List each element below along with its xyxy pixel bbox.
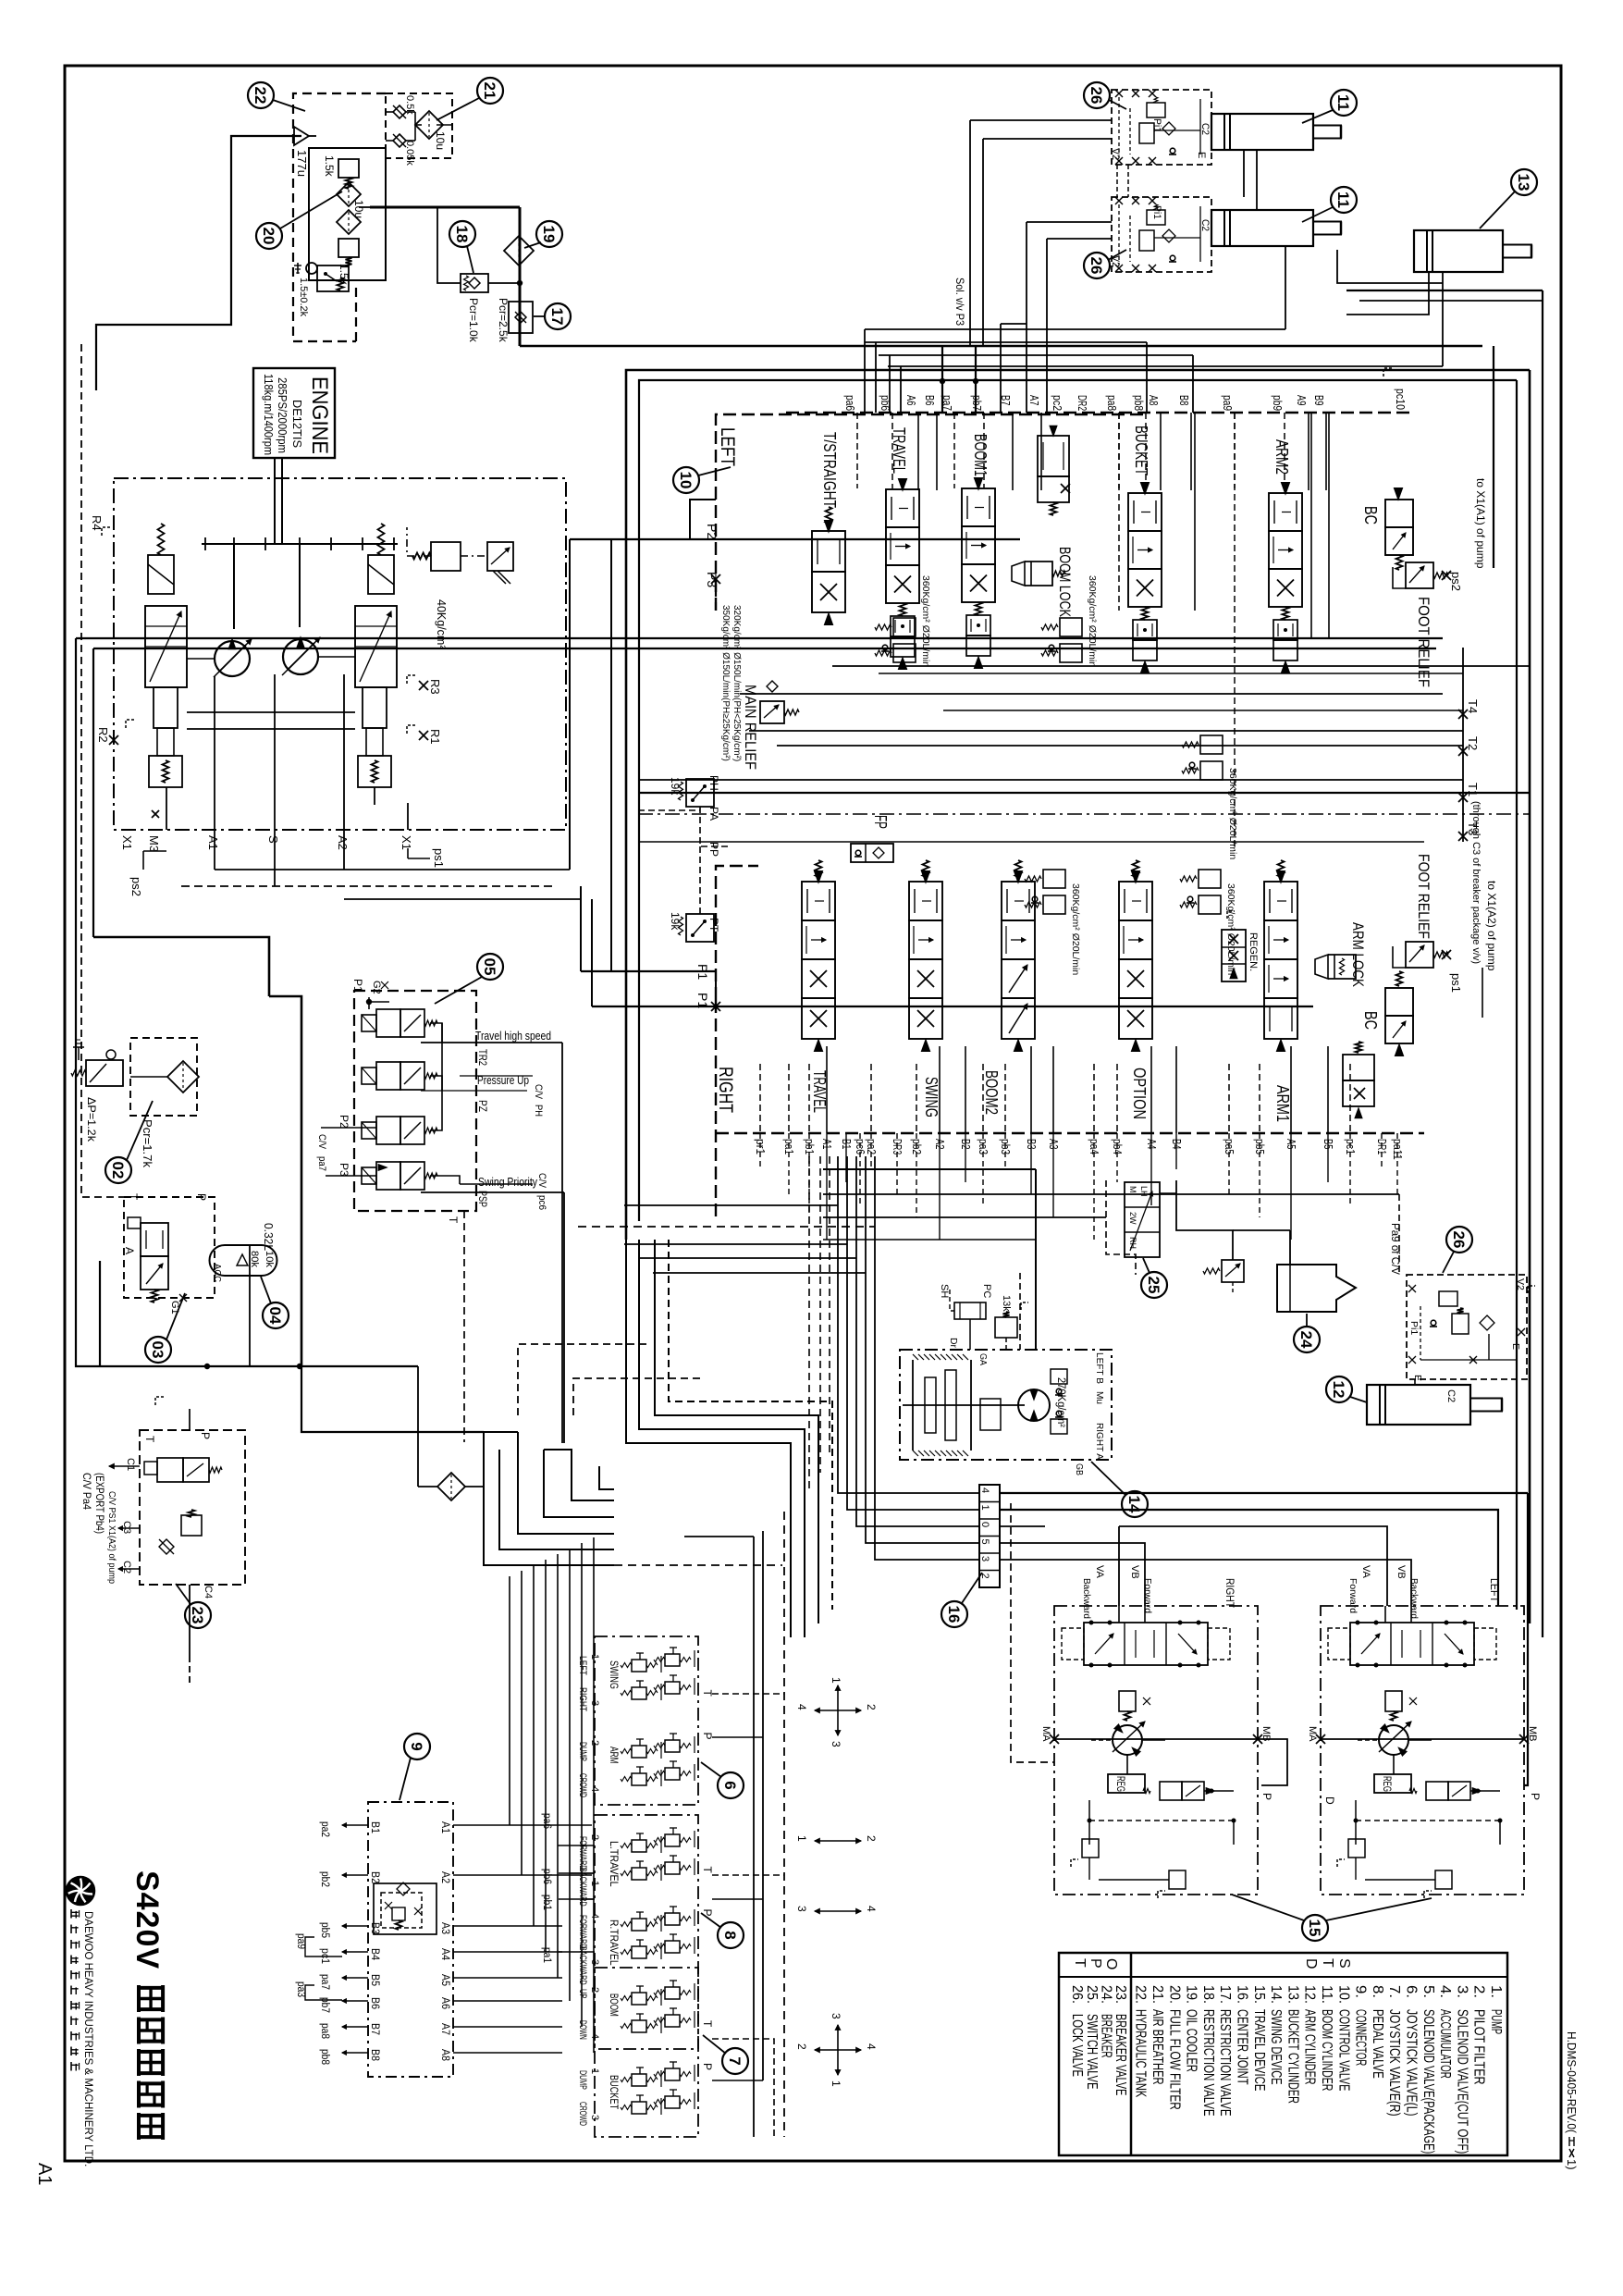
svg-text:pc2: pc2 — [1051, 395, 1064, 411]
svg-text:0.32L: 0.32L — [262, 1223, 276, 1251]
svg-text:T: T — [701, 2020, 714, 2028]
svg-text:GA: GA — [977, 1353, 989, 1365]
svg-text:E: E — [1196, 152, 1207, 158]
svg-text:PH: PH — [707, 775, 720, 791]
svg-text:T4: T4 — [1466, 699, 1480, 713]
svg-text:OPTION: OPTION — [1130, 1068, 1149, 1119]
svg-text:1: 1 — [589, 1881, 600, 1886]
svg-text:14.: 14. — [1268, 1985, 1284, 2004]
svg-text:PP: PP — [707, 842, 720, 857]
svg-text:10.: 10. — [1335, 1985, 1351, 2004]
svg-text:20.: 20. — [1166, 1985, 1182, 2004]
svg-text:LEFT: LEFT — [577, 1656, 588, 1675]
svg-text:03: 03 — [149, 1341, 166, 1359]
svg-text:LH: LH — [1139, 1186, 1149, 1197]
svg-text:D: D — [1303, 1958, 1319, 1969]
svg-text:pa9: pa9 — [295, 1933, 306, 1949]
svg-text:T/STRAIGHT: T/STRAIGHT — [820, 432, 839, 508]
svg-text:5.: 5. — [1420, 1985, 1436, 1998]
svg-text:A2: A2 — [336, 835, 350, 850]
svg-text:LOCK VALVE: LOCK VALVE — [1069, 2014, 1085, 2077]
svg-text:E: E — [1412, 1375, 1423, 1381]
svg-text:18.: 18. — [1200, 1985, 1216, 2004]
svg-text:P1: P1 — [351, 979, 364, 993]
svg-text:JOYSTICK VALVE(L): JOYSTICK VALVE(L) — [1404, 2009, 1420, 2117]
svg-text:23: 23 — [189, 1607, 206, 1624]
svg-text:FOOT RELIEF: FOOT RELIEF — [1415, 854, 1432, 939]
svg-text:3: 3 — [589, 2115, 600, 2120]
svg-text:5: 5 — [979, 1539, 990, 1545]
svg-text:TRAVEL DEVICE: TRAVEL DEVICE — [1251, 2009, 1267, 2091]
svg-text:02: 02 — [109, 1162, 127, 1179]
svg-text:X1: X1 — [400, 835, 413, 850]
svg-text:ARM2: ARM2 — [1273, 439, 1291, 475]
svg-text:to X1(A1) of pump: to X1(A1) of pump — [1474, 478, 1487, 569]
svg-text:BOOM2: BOOM2 — [982, 1070, 1001, 1115]
svg-text:SOLENOID VALVE(CUT OFF): SOLENOID VALVE(CUT OFF) — [1454, 2009, 1469, 2154]
svg-text:8: 8 — [721, 1931, 739, 1939]
svg-text:pa2: pa2 — [319, 1821, 330, 1837]
svg-text:T: T — [1320, 1958, 1335, 1968]
svg-text:25.: 25. — [1084, 1985, 1100, 2004]
svg-text:P: P — [701, 2063, 714, 2070]
svg-text:11: 11 — [1334, 94, 1352, 111]
svg-text:C/V PS1 X1(A2) of pump: C/V PS1 X1(A2) of pump — [106, 1491, 117, 1584]
svg-text:Dr: Dr — [948, 1338, 959, 1348]
svg-text:BUCKET: BUCKET — [608, 2075, 621, 2110]
svg-text:AIR BREATHER: AIR BREATHER — [1150, 2009, 1165, 2085]
svg-text:ARM: ARM — [608, 1747, 621, 1764]
svg-text:Forward: Forward — [1347, 1578, 1358, 1613]
svg-text:D: D — [1323, 1796, 1336, 1805]
svg-text:BOOM: BOOM — [608, 1994, 621, 2017]
svg-text:B6: B6 — [923, 395, 937, 405]
svg-text:7.: 7. — [1386, 1985, 1402, 1998]
svg-text:P: P — [195, 1193, 208, 1201]
svg-text:CONNECTOR: CONNECTOR — [1353, 2009, 1369, 2066]
svg-text:FP: FP — [871, 815, 890, 829]
svg-text:MA: MA — [1040, 1726, 1051, 1742]
svg-text:R1: R1 — [428, 729, 442, 745]
svg-text:T: T — [1072, 1958, 1088, 1968]
svg-text:R.TRAVEL: R.TRAVEL — [608, 1920, 621, 1966]
svg-text:to X1(A2) of pump: to X1(A2) of pump — [1485, 881, 1498, 971]
svg-text:E: E — [1510, 1343, 1521, 1350]
svg-text:SWING: SWING — [608, 1660, 621, 1689]
svg-text:13: 13 — [1515, 174, 1532, 191]
svg-text:ACC: ACC — [212, 1264, 222, 1282]
svg-text:Swing Priority: Swing Priority — [478, 1176, 538, 1189]
svg-text:R3: R3 — [428, 679, 442, 695]
svg-text:pb8: pb8 — [319, 2049, 330, 2065]
svg-text:LEFT: LEFT — [717, 427, 738, 466]
svg-text:REG: REG — [1114, 1776, 1127, 1792]
svg-text:4: 4 — [979, 1487, 990, 1493]
svg-text:2.: 2. — [1471, 1985, 1487, 1998]
svg-text:1.5k: 1.5k — [323, 155, 336, 178]
svg-text:BREAKER: BREAKER — [1098, 2014, 1113, 2058]
svg-text:16: 16 — [945, 1606, 963, 1623]
svg-text:Pa9 of C/V: Pa9 of C/V — [1389, 1223, 1400, 1275]
svg-text:18: 18 — [453, 226, 471, 243]
svg-text:B2: B2 — [369, 1871, 380, 1883]
svg-text:24: 24 — [1297, 1331, 1315, 1349]
svg-text:ΔP=1.2k: ΔP=1.2k — [85, 1097, 98, 1142]
svg-text:22.: 22. — [1133, 1985, 1149, 2004]
svg-text:4: 4 — [589, 1913, 600, 1919]
svg-text:A4: A4 — [439, 1948, 450, 1961]
svg-text:4: 4 — [865, 1906, 878, 1912]
svg-text:B7: B7 — [369, 2023, 380, 2035]
svg-text:A7: A7 — [1027, 395, 1041, 405]
svg-text:BOOM CYLINDER: BOOM CYLINDER — [1319, 2009, 1334, 2091]
svg-text:0.05k: 0.05k — [404, 141, 415, 166]
svg-text:pb2: pb2 — [319, 1871, 330, 1887]
svg-text:V2: V2 — [1515, 1278, 1526, 1290]
svg-text:MAIN RELIEF: MAIN RELIEF — [742, 685, 759, 770]
svg-text:270Kg/cm²: 270Kg/cm² — [1055, 1377, 1066, 1427]
svg-text:ACCUMULATOR: ACCUMULATOR — [1437, 2009, 1453, 2079]
svg-text:Sol. v/v P3: Sol. v/v P3 — [953, 278, 966, 326]
svg-text:SWING DEVICE: SWING DEVICE — [1268, 2009, 1284, 2085]
svg-text:BUCKET: BUCKET — [1132, 426, 1150, 475]
svg-text:B8: B8 — [369, 2049, 380, 2061]
svg-text:A3: A3 — [439, 1922, 450, 1934]
svg-text:13.: 13. — [1285, 1985, 1300, 2004]
svg-text:A1: A1 — [206, 835, 220, 850]
svg-text:pb1: pb1 — [541, 1895, 552, 1910]
svg-text:H.DMS-0405-REV.0(: H.DMS-0405-REV.0( — [1565, 2031, 1579, 2134]
svg-text:TR2: TR2 — [476, 1049, 489, 1066]
svg-text:12: 12 — [1330, 1381, 1347, 1399]
svg-text:pa7: pa7 — [319, 1974, 330, 1990]
svg-text:C2: C2 — [1199, 123, 1211, 135]
svg-text:pb9: pb9 — [1271, 395, 1285, 411]
svg-text:6: 6 — [721, 1781, 739, 1789]
svg-text:V2: V2 — [1110, 148, 1121, 160]
svg-text:pb5: pb5 — [319, 1922, 330, 1938]
svg-text:22: 22 — [252, 87, 269, 105]
svg-text:B6: B6 — [369, 1997, 380, 2009]
svg-text:C1: C1 — [125, 1458, 136, 1471]
svg-text:26: 26 — [1450, 1231, 1468, 1249]
svg-text:PILOT FILTER: PILOT FILTER — [1471, 2009, 1487, 2085]
svg-text:PT: PT — [707, 918, 720, 932]
svg-text:DAEWOO HEAVY INDUSTRIES & MACH: DAEWOO HEAVY INDUSTRIES & MACHINERY LTD. — [82, 1911, 93, 2166]
svg-text:ARM1: ARM1 — [1273, 1085, 1292, 1122]
svg-text:26.: 26. — [1069, 1985, 1085, 2004]
svg-text:2W: 2W — [1128, 1212, 1137, 1225]
svg-text:L.TRAVEL: L.TRAVEL — [608, 1841, 621, 1887]
svg-text:3: 3 — [589, 1700, 600, 1706]
svg-text:Pi1: Pi1 — [1408, 1321, 1420, 1335]
svg-text:P: P — [1529, 1793, 1542, 1800]
svg-text:15.: 15. — [1251, 1985, 1267, 2004]
svg-text:C/V: C/V — [316, 1134, 327, 1150]
svg-text:C4: C4 — [203, 1586, 214, 1599]
svg-text:04: 04 — [266, 1307, 284, 1325]
svg-text:3.: 3. — [1454, 1985, 1469, 1998]
svg-text:0: 0 — [979, 1522, 990, 1527]
svg-text:ps2: ps2 — [1449, 572, 1463, 591]
svg-text:pa3: pa3 — [295, 1981, 306, 1997]
svg-text:1: 1 — [795, 1835, 808, 1842]
svg-text:pb7: pb7 — [970, 395, 984, 411]
svg-text:Mu: Mu — [1094, 1391, 1105, 1404]
svg-text:(through C3 of breaker package: (through C3 of breaker package v/v) — [1470, 801, 1482, 964]
svg-text:Pcr=1.0k: Pcr=1.0k — [467, 298, 480, 343]
svg-text:C2: C2 — [1445, 1389, 1457, 1402]
svg-text:320Kg/cm² Ø150L/min(PH<25Kg/cm: 320Kg/cm² Ø150L/min(PH<25Kg/cm²) — [732, 605, 742, 761]
svg-text:10u: 10u — [434, 131, 447, 150]
svg-text:Pcr=2.5k: Pcr=2.5k — [497, 298, 510, 343]
svg-text:1: 1 — [830, 1677, 842, 1684]
svg-text:3: 3 — [589, 1959, 600, 1965]
svg-text:SH: SH — [939, 1284, 950, 1298]
svg-text:B8: B8 — [1177, 395, 1191, 405]
svg-text:RIGHT: RIGHT — [577, 1687, 588, 1711]
svg-text:PC: PC — [981, 1284, 992, 1298]
svg-text:VB: VB — [1396, 1565, 1407, 1579]
svg-text:RIGHT A: RIGHT A — [1094, 1423, 1105, 1460]
svg-text:SOLENOID VALVE(PACKAGE): SOLENOID VALVE(PACKAGE) — [1420, 2009, 1436, 2154]
svg-text:SWITCH VALVE: SWITCH VALVE — [1084, 2014, 1100, 2090]
svg-text:B3: B3 — [369, 1922, 380, 1934]
svg-text:R2: R2 — [96, 727, 110, 743]
svg-text:17: 17 — [548, 308, 566, 326]
svg-text:9: 9 — [408, 1742, 425, 1750]
svg-text:B9: B9 — [1312, 395, 1326, 405]
svg-text:Pi1: Pi1 — [1151, 118, 1162, 132]
svg-text:pc6: pc6 — [536, 1195, 547, 1210]
svg-text:TRAVEL: TRAVEL — [810, 1070, 829, 1113]
svg-text:1: 1 — [979, 1505, 990, 1511]
svg-text:360Kg/cm² Ø20L/min: 360Kg/cm² Ø20L/min — [920, 575, 931, 667]
svg-text:LEFT B: LEFT B — [1094, 1352, 1105, 1384]
svg-text:(EXPORT Pb4): (EXPORT Pb4) — [93, 1473, 106, 1534]
svg-text:BREAKER VALVE: BREAKER VALVE — [1113, 2014, 1128, 2095]
svg-text:A1: A1 — [34, 2163, 55, 2185]
svg-text:RESTRICTION VALVE: RESTRICTION VALVE — [1217, 2009, 1233, 2117]
svg-text:X1: X1 — [120, 835, 134, 850]
svg-text:10k: 10k — [264, 1251, 275, 1267]
svg-text:HYDRAULIC TANK: HYDRAULIC TANK — [1133, 2009, 1149, 2097]
svg-text:pa9: pa9 — [1221, 395, 1235, 411]
svg-text:P: P — [1260, 1793, 1273, 1800]
svg-text:350Kg/cm² Ø150L/min(PH≥25Kg/cm: 350Kg/cm² Ø150L/min(PH≥25Kg/cm²) — [720, 605, 731, 761]
svg-text:7: 7 — [726, 2056, 744, 2065]
svg-text:16.: 16. — [1235, 1985, 1250, 2004]
svg-text:1.: 1. — [1488, 1985, 1504, 1998]
svg-text:285PS/2000rpm: 285PS/2000rpm — [276, 377, 289, 453]
svg-text:20: 20 — [260, 228, 277, 245]
svg-text:Pi1: Pi1 — [1151, 205, 1162, 219]
svg-text:21: 21 — [481, 82, 498, 100]
svg-text:S: S — [1336, 1958, 1352, 1969]
svg-text:BUCKET CYLINDER: BUCKET CYLINDER — [1285, 2009, 1300, 2104]
svg-text:Forward: Forward — [1142, 1578, 1152, 1613]
svg-text:O: O — [1103, 1958, 1119, 1969]
svg-text:ps2: ps2 — [129, 877, 143, 896]
svg-text:DR2: DR2 — [1076, 395, 1089, 411]
svg-text:C2: C2 — [1199, 219, 1211, 231]
svg-text:4: 4 — [795, 1704, 808, 1710]
svg-text:RESTRICTION VALVE: RESTRICTION VALVE — [1200, 2009, 1216, 2117]
svg-text:B4: B4 — [369, 1948, 380, 1961]
svg-text:11.: 11. — [1319, 1985, 1334, 2004]
svg-text:T: T — [701, 1690, 714, 1697]
svg-text:GB: GB — [1074, 1463, 1085, 1475]
svg-text:118kg.m/1400rpm: 118kg.m/1400rpm — [262, 374, 275, 455]
svg-text:DUMP: DUMP — [577, 2070, 588, 2090]
svg-text:JOYSTICK VALVE(R): JOYSTICK VALVE(R) — [1386, 2009, 1402, 2117]
svg-text:9.: 9. — [1353, 1985, 1369, 1998]
svg-text:360Kg/cm² Ø20L/min: 360Kg/cm² Ø20L/min — [1070, 883, 1081, 975]
svg-text:T: T — [143, 1436, 156, 1443]
svg-text:P: P — [701, 1733, 714, 1740]
svg-text:pb6: pb6 — [541, 1869, 552, 1884]
svg-text:SWING: SWING — [922, 1077, 941, 1117]
svg-text:26: 26 — [1088, 257, 1105, 275]
svg-text:CENTER JOINT: CENTER JOINT — [1235, 2009, 1250, 2085]
svg-text:DUMP: DUMP — [577, 1742, 588, 1761]
svg-text:VA: VA — [1360, 1565, 1371, 1579]
svg-text:UP: UP — [577, 1989, 588, 1998]
svg-text:B5: B5 — [369, 1974, 380, 1986]
svg-text:RIGHT: RIGHT — [715, 1067, 736, 1113]
svg-text:S: S — [266, 835, 280, 844]
svg-text:17.: 17. — [1217, 1985, 1233, 2004]
svg-text:ps1: ps1 — [1449, 973, 1463, 993]
svg-text:3: 3 — [979, 1556, 990, 1562]
svg-text:Backward: Backward — [1081, 1578, 1091, 1619]
svg-text:2: 2 — [865, 1704, 878, 1710]
svg-text:4: 4 — [589, 1786, 600, 1792]
svg-text:1: 1 — [830, 2080, 842, 2087]
svg-text:PH: PH — [533, 1105, 544, 1117]
svg-text:CROWD: CROWD — [577, 2102, 588, 2126]
svg-text:P: P — [199, 1432, 212, 1439]
svg-text:8.: 8. — [1370, 1985, 1385, 1998]
svg-text:ENGINE: ENGINE — [307, 376, 332, 454]
svg-text:A8: A8 — [1147, 395, 1161, 405]
svg-text:FULL FLOW FILTER: FULL FLOW FILTER — [1166, 2009, 1182, 2110]
svg-text:VA: VA — [1094, 1565, 1105, 1579]
svg-text:1): 1) — [1565, 2159, 1579, 2170]
svg-text:pa6: pa6 — [843, 395, 857, 411]
svg-text:pa8: pa8 — [319, 2023, 330, 2039]
svg-text:C/V: C/V — [533, 1084, 544, 1100]
svg-text:A7: A7 — [439, 2023, 450, 2035]
svg-text:360Kg/cm² Ø20L/min: 360Kg/cm² Ø20L/min — [1087, 575, 1098, 667]
svg-text:11: 11 — [1334, 191, 1352, 208]
svg-text:P3: P3 — [338, 1163, 350, 1177]
svg-text:MA: MA — [1307, 1726, 1318, 1742]
svg-text:4: 4 — [865, 2043, 878, 2050]
svg-text:A5: A5 — [439, 1974, 450, 1986]
svg-text:BOOM LOCK: BOOM LOCK — [1056, 547, 1074, 617]
svg-text:VB: VB — [1129, 1565, 1140, 1579]
svg-text:T: T — [701, 1867, 714, 1874]
svg-text:19k: 19k — [669, 912, 682, 931]
svg-text:G2: G2 — [371, 981, 382, 994]
svg-text:B1: B1 — [369, 1821, 380, 1833]
svg-text:pa7: pa7 — [316, 1156, 327, 1171]
svg-text:6.: 6. — [1404, 1985, 1420, 1998]
svg-text:26: 26 — [1088, 87, 1105, 105]
svg-text:DE12TIS: DE12TIS — [290, 400, 304, 448]
svg-text:23.: 23. — [1113, 1985, 1128, 2004]
svg-text:A: A — [123, 1247, 136, 1254]
svg-text:15: 15 — [1306, 1920, 1323, 1937]
svg-text:A6: A6 — [439, 1997, 450, 2009]
svg-text:1: 1 — [589, 1654, 600, 1660]
svg-text:A9: A9 — [1295, 395, 1309, 405]
svg-text:CONTROL VALVE: CONTROL VALVE — [1335, 2009, 1351, 2091]
svg-text:Backward: Backward — [1408, 1578, 1419, 1619]
svg-text:40Kg/cm²: 40Kg/cm² — [435, 599, 448, 649]
svg-text:REGEN.: REGEN. — [1248, 932, 1259, 971]
svg-text:05: 05 — [481, 958, 498, 976]
svg-text:A6: A6 — [904, 395, 918, 405]
svg-text:ARM CYLINDER: ARM CYLINDER — [1302, 2009, 1318, 2085]
svg-text:P2: P2 — [338, 1115, 350, 1129]
svg-text:2: 2 — [795, 2043, 808, 2050]
svg-text:FORWARD: FORWARD — [577, 1915, 588, 1948]
svg-text:2: 2 — [589, 1834, 600, 1840]
svg-text:T: T — [127, 1193, 140, 1201]
svg-text:2: 2 — [589, 1987, 600, 1993]
svg-text:3: 3 — [795, 1906, 808, 1912]
svg-text:Travel high speed: Travel high speed — [475, 1030, 551, 1043]
svg-text:10: 10 — [677, 472, 695, 489]
svg-text:1: 1 — [589, 2068, 600, 2074]
svg-text:OIL COOLER: OIL COOLER — [1184, 2009, 1199, 2072]
svg-text:FORWARD: FORWARD — [577, 1836, 588, 1870]
svg-text:pc10: pc10 — [1394, 389, 1408, 410]
svg-text:19.: 19. — [1184, 1985, 1199, 2004]
svg-text:12.: 12. — [1302, 1985, 1318, 2004]
svg-text:3: 3 — [830, 2013, 842, 2019]
svg-text:80k: 80k — [249, 1251, 260, 1267]
svg-text:A8: A8 — [439, 2049, 450, 2061]
svg-text:A2: A2 — [439, 1871, 450, 1883]
svg-text:25: 25 — [1145, 1277, 1162, 1294]
svg-text:pa8: pa8 — [1105, 395, 1119, 411]
svg-text:T1: T1 — [1466, 783, 1480, 796]
svg-text:19: 19 — [540, 226, 558, 243]
svg-text:P: P — [1088, 1958, 1103, 1969]
svg-text:pa6: pa6 — [541, 1813, 552, 1829]
svg-text:C/V Pa4: C/V Pa4 — [80, 1473, 93, 1510]
svg-text:T: T — [447, 1216, 460, 1224]
svg-text:1.5±0.2k: 1.5±0.2k — [298, 278, 309, 317]
svg-text:RIGHT: RIGHT — [1223, 1578, 1236, 1609]
svg-text:21.: 21. — [1150, 1985, 1165, 2004]
svg-text:PUMP: PUMP — [1488, 2009, 1504, 2034]
svg-text:pb8: pb8 — [1132, 395, 1146, 411]
svg-text:M3: M3 — [147, 835, 161, 852]
svg-text:PEDAL VALVE: PEDAL VALVE — [1370, 2009, 1385, 2079]
svg-text:13k: 13k — [1001, 1295, 1012, 1312]
svg-text:177u: 177u — [295, 150, 309, 177]
svg-text:S420V: S420V — [129, 1870, 165, 1969]
svg-text:4.: 4. — [1437, 1985, 1453, 1998]
svg-text:3: 3 — [830, 1741, 842, 1747]
svg-text:BOOM1: BOOM1 — [971, 434, 990, 476]
svg-text:T2: T2 — [1466, 736, 1480, 750]
svg-text:BC: BC — [1361, 506, 1380, 525]
